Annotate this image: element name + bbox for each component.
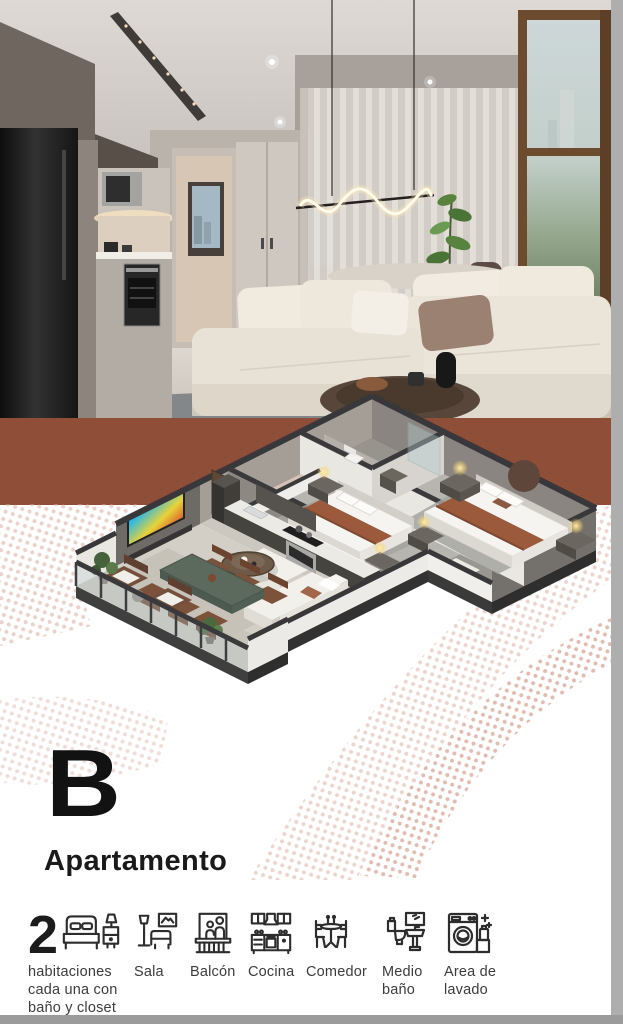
bedside-lamp bbox=[417, 515, 431, 529]
features-row: 2 habitaciones ca bbox=[28, 893, 584, 1018]
feature-label: habitaciones cada una con baño y closet bbox=[28, 964, 124, 1018]
feature-label: Comedor bbox=[306, 964, 372, 982]
kitchen-icon bbox=[248, 909, 294, 957]
kitchen-cabinets bbox=[94, 168, 174, 418]
mauve-pillow bbox=[417, 294, 495, 352]
page-edge-right bbox=[611, 0, 623, 1024]
bed-icon bbox=[59, 907, 123, 957]
bedside-lamp bbox=[373, 541, 387, 555]
apartment-letter: B bbox=[46, 736, 119, 832]
bedside-lamp bbox=[568, 518, 584, 534]
feature-item-cocina: Cocina bbox=[248, 893, 296, 982]
balcony-icon bbox=[190, 909, 236, 957]
feature-item-comedor: Comedor bbox=[306, 893, 372, 982]
feature-label: Sala bbox=[134, 964, 180, 982]
hero-photo bbox=[0, 0, 611, 418]
feature-item-bedrooms: 2 habitaciones ca bbox=[28, 893, 124, 1018]
feature-item-medio-bano: Medio baño bbox=[382, 893, 434, 1000]
feature-label: Medio baño bbox=[382, 964, 434, 1000]
sofa-lamp-icon bbox=[134, 909, 180, 957]
feature-item-balcon: Balcón bbox=[190, 893, 238, 982]
brochure-page: B Apartamento 2 bbox=[0, 0, 623, 1024]
feature-item-lavado: Area de lavado bbox=[444, 893, 518, 1000]
bedside-lamp bbox=[317, 465, 331, 479]
feature-label: Area de lavado bbox=[444, 964, 518, 1000]
wall-mirror bbox=[508, 460, 540, 492]
dining-icon bbox=[306, 909, 356, 957]
apartment-title: Apartamento bbox=[44, 845, 227, 878]
bedrooms-count: 2 bbox=[28, 913, 58, 957]
feature-label: Balcón bbox=[190, 964, 238, 982]
floor-plan-illustration bbox=[6, 418, 606, 748]
fridge bbox=[0, 128, 78, 418]
bedside-lamp bbox=[452, 460, 468, 476]
feature-item-sala: Sala bbox=[134, 893, 180, 982]
feature-label: Cocina bbox=[248, 964, 296, 982]
toilet-sink-icon bbox=[382, 909, 430, 957]
page-edge-bottom bbox=[0, 1015, 623, 1024]
washer-icon bbox=[444, 909, 492, 957]
